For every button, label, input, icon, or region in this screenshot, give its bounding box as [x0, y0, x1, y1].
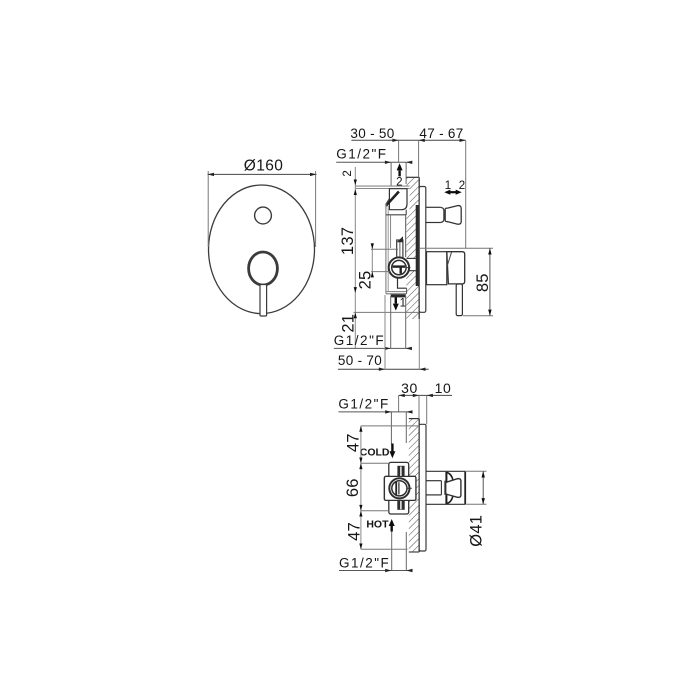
svg-text:30: 30 [401, 380, 418, 396]
svg-text:Ø41: Ø41 [468, 515, 486, 547]
svg-text:47: 47 [345, 433, 363, 452]
svg-text:10: 10 [435, 380, 452, 396]
svg-text:COLD: COLD [360, 446, 390, 458]
svg-text:G1/2"F: G1/2"F [338, 396, 389, 411]
svg-text:66: 66 [344, 478, 362, 497]
svg-text:2: 2 [342, 170, 354, 176]
svg-text:1: 1 [400, 297, 406, 309]
svg-text:HOT: HOT [366, 518, 389, 530]
svg-text:G1/2"F: G1/2"F [334, 333, 385, 348]
svg-text:G1/2"F: G1/2"F [336, 147, 387, 162]
svg-text:G1/2"F: G1/2"F [339, 556, 390, 571]
svg-text:Ø160: Ø160 [244, 158, 284, 175]
svg-text:50 - 70: 50 - 70 [338, 353, 382, 368]
svg-text:137: 137 [339, 227, 357, 255]
svg-text:21: 21 [339, 314, 357, 333]
svg-text:47: 47 [345, 522, 363, 541]
svg-text:47 - 67: 47 - 67 [419, 126, 463, 141]
svg-text:25: 25 [356, 271, 374, 290]
svg-text:2: 2 [459, 180, 465, 192]
svg-text:30 - 50: 30 - 50 [350, 126, 394, 141]
svg-text:2: 2 [396, 176, 402, 188]
svg-text:85: 85 [474, 273, 492, 292]
